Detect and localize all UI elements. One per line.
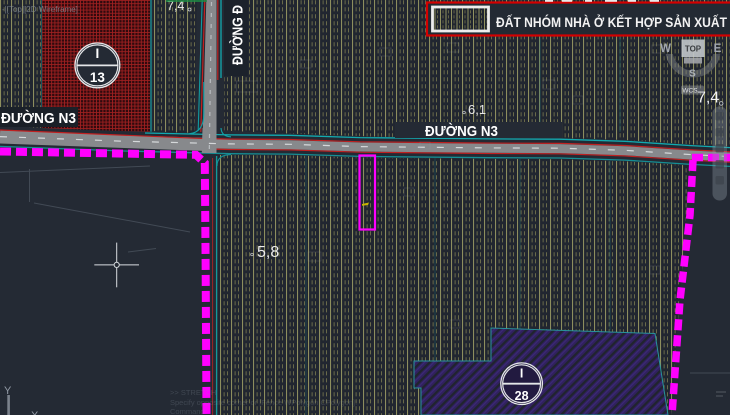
svg-text:6,1: 6,1	[468, 102, 486, 117]
svg-text:W: W	[660, 43, 671, 55]
svg-text:-|[Top][2D Wireframe]: -|[Top][2D Wireframe]	[2, 5, 78, 14]
svg-text:7,4: 7,4	[167, 0, 184, 13]
svg-text:X: X	[31, 410, 39, 415]
svg-text:E: E	[714, 43, 722, 55]
svg-text:ĐƯỜNG Đ: ĐƯỜNG Đ	[229, 5, 247, 65]
svg-text:Y: Y	[4, 385, 12, 397]
svg-text:TOP: TOP	[685, 45, 702, 54]
svg-text:Specify opposite corner or [Fe: Specify opposite corner or [Fence WPolyg…	[170, 398, 357, 407]
svg-text:ĐẤT NHÓM NHÀ Ở KẾT HỢP SẢN XUẤ: ĐẤT NHÓM NHÀ Ở KẾT HỢP SẢN XUẤT	[496, 15, 728, 30]
svg-text:S: S	[689, 69, 696, 80]
svg-text:28: 28	[515, 389, 529, 403]
svg-text:I: I	[520, 367, 523, 381]
svg-text:Command:: Command:	[170, 407, 207, 415]
svg-text:WCS: WCS	[682, 88, 698, 95]
svg-text:ĐƯỜNG N3: ĐƯỜNG N3	[425, 122, 498, 140]
svg-text:>> STRETCH: >> STRETCH	[170, 388, 216, 397]
svg-text:ĐƯỜNG N3: ĐƯỜNG N3	[1, 109, 76, 127]
svg-text:I: I	[96, 46, 100, 61]
svg-text:13: 13	[90, 70, 106, 85]
svg-text:5,8: 5,8	[257, 244, 279, 261]
